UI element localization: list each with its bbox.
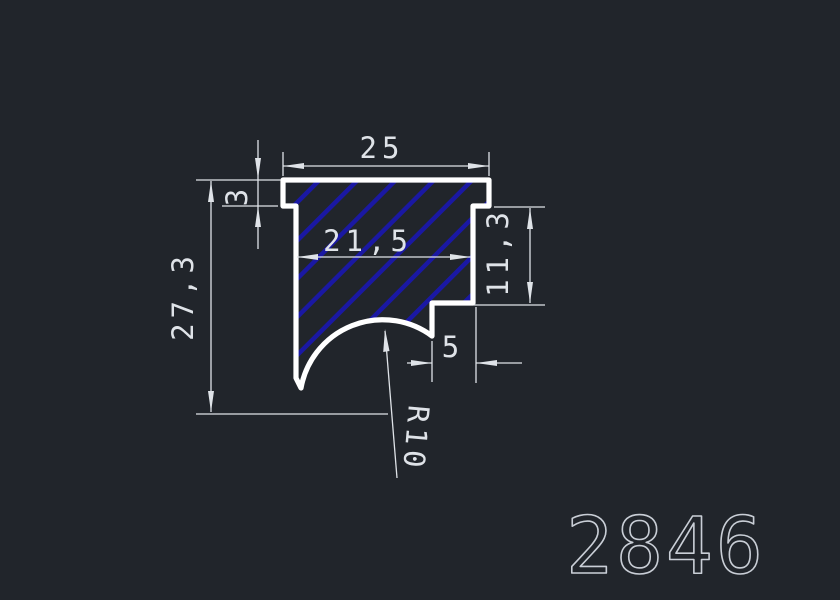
dim-text-25: 25 <box>360 131 405 165</box>
dim-text-21-5: 21,5 <box>323 224 413 258</box>
dim-text-11-3: 11,3 <box>481 207 515 297</box>
part-number: 2846 <box>566 502 766 592</box>
dim-text-27-3: 27,3 <box>166 251 200 341</box>
cad-drawing-canvas: 25 3 27,3 21,5 11,3 5 R10 2846 <box>0 0 840 600</box>
dim-text-5: 5 <box>442 330 464 364</box>
cad-viewport: 25 3 27,3 21,5 11,3 5 R10 2846 <box>0 0 840 600</box>
dim-text-r10: R10 <box>396 404 436 474</box>
dim-text-3: 3 <box>220 184 254 206</box>
